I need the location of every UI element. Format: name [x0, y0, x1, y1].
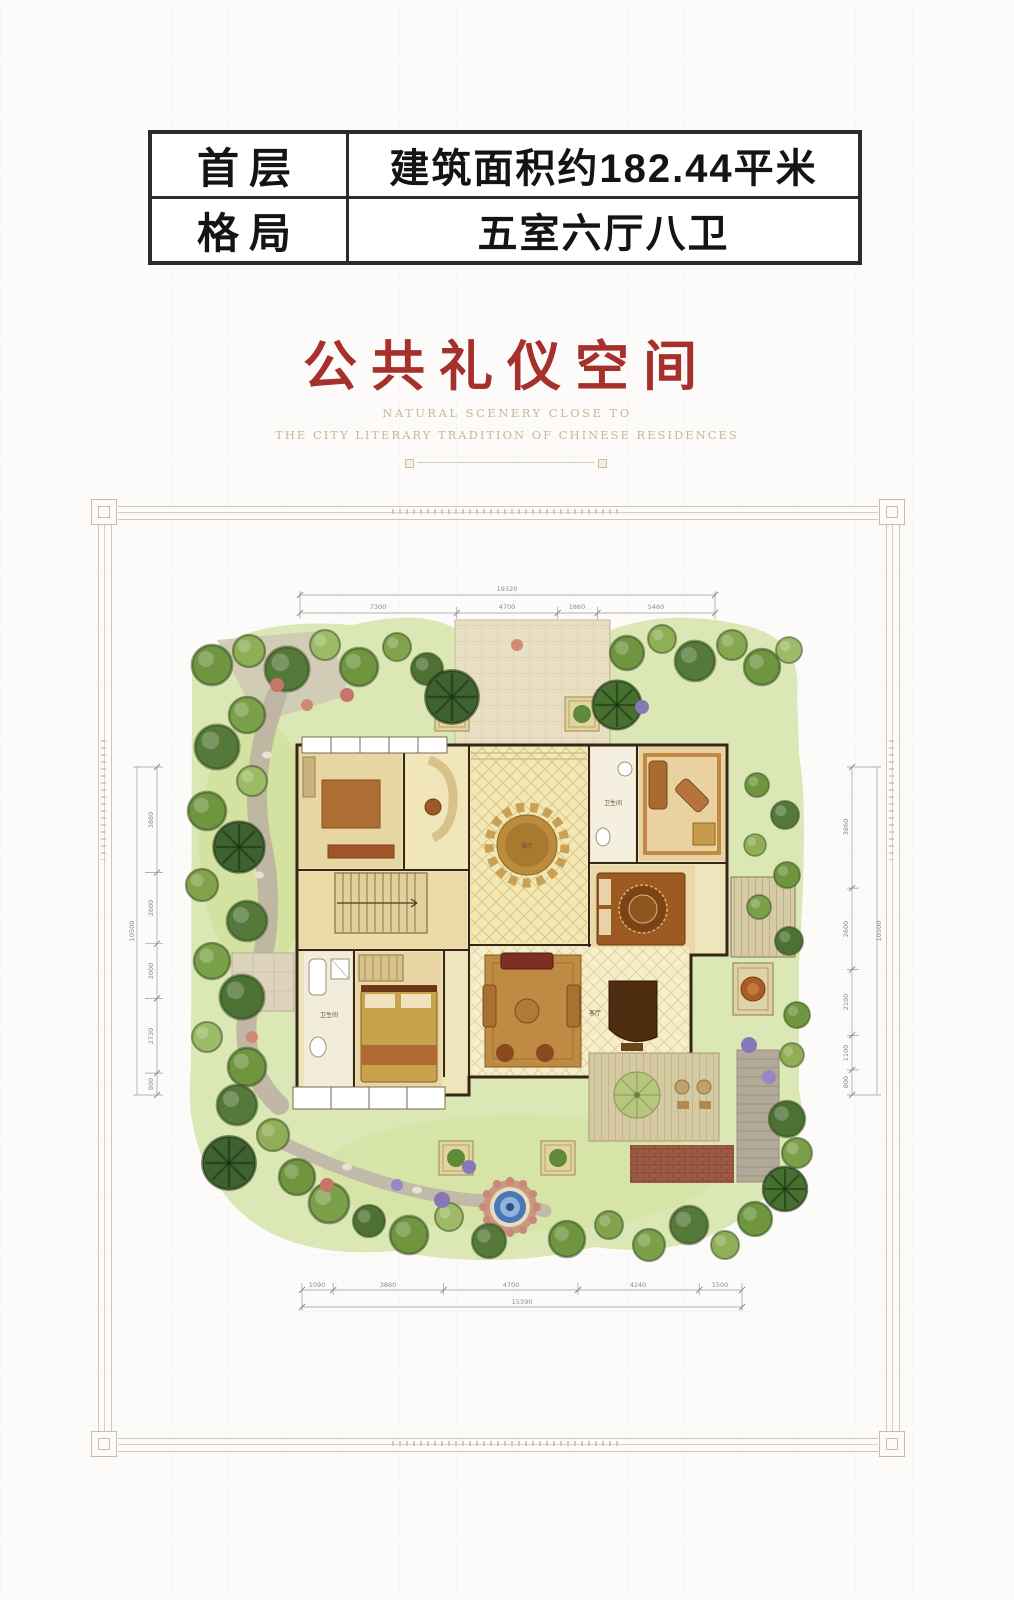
- dimension-bottom: 1090 3860 4700 4240 1500 15390: [299, 1281, 745, 1311]
- svg-text:3860: 3860: [147, 812, 155, 829]
- tagline-line2: THE CITY LITERARY TRADITION OF CHINESE R…: [0, 428, 1014, 442]
- svg-text:卫生间: 卫生间: [320, 1011, 338, 1019]
- svg-text:4700: 4700: [499, 603, 516, 611]
- frame-corner-icon: [879, 1431, 905, 1457]
- divider-square-icon: [405, 459, 414, 468]
- table-row: 首层 建筑面积约182.44平米: [152, 134, 858, 196]
- frame-corner-icon: [91, 1431, 117, 1457]
- window-band-bottom: [293, 1087, 445, 1109]
- svg-text:1100: 1100: [842, 1045, 850, 1062]
- area-value: 建筑面积约182.44平米: [349, 134, 858, 196]
- brick-terrace: [630, 1145, 734, 1183]
- dimension-left: 3860 2600 2000 2730 800 10500: [128, 764, 163, 1098]
- svg-text:2600: 2600: [147, 900, 155, 917]
- page-title: 公共礼仪空间: [0, 322, 1014, 401]
- svg-text:10500: 10500: [128, 921, 136, 942]
- patio-deck: [589, 1053, 719, 1141]
- svg-text:3860: 3860: [380, 1281, 397, 1289]
- svg-text:2100: 2100: [842, 994, 850, 1011]
- svg-text:2730: 2730: [147, 1028, 155, 1045]
- frame-ornament-text: [392, 509, 622, 514]
- svg-text:2000: 2000: [147, 963, 155, 980]
- svg-text:1500: 1500: [712, 1281, 729, 1289]
- svg-text:客厅: 客厅: [589, 1009, 601, 1017]
- dimension-top: 19320 7300 4700 1860 5460: [297, 585, 718, 619]
- info-table: 首层 建筑面积约182.44平米 格局 五室六厅八卫: [148, 130, 862, 265]
- svg-text:1090: 1090: [309, 1281, 326, 1289]
- floor-label: 首层: [152, 134, 349, 196]
- divider-square-icon: [598, 459, 607, 468]
- svg-text:15390: 15390: [512, 1298, 533, 1306]
- frame-corner-icon: [879, 499, 905, 525]
- svg-text:10500: 10500: [875, 921, 883, 942]
- parasol-icon: [614, 1072, 660, 1118]
- frame-ornament-text: [392, 1441, 622, 1446]
- layout-label: 格局: [152, 199, 349, 261]
- svg-text:4240: 4240: [630, 1281, 647, 1289]
- svg-text:800: 800: [842, 1076, 850, 1088]
- frame-corner-icon: [91, 499, 117, 525]
- svg-text:4700: 4700: [503, 1281, 520, 1289]
- flyer-page: 首层 建筑面积约182.44平米 格局 五室六厅八卫 公共礼仪空间 NATURA…: [0, 0, 1014, 1600]
- entry-foyer: [733, 963, 773, 1015]
- svg-text:卫生间: 卫生间: [604, 799, 622, 807]
- svg-text:5460: 5460: [648, 603, 665, 611]
- layout-value: 五室六厅八卫: [349, 199, 858, 261]
- svg-text:19320: 19320: [497, 585, 518, 593]
- window-band-top: [302, 737, 447, 753]
- svg-text:餐厅: 餐厅: [521, 842, 533, 850]
- svg-text:7300: 7300: [370, 603, 387, 611]
- svg-text:2600: 2600: [842, 921, 850, 938]
- table-row: 格局 五室六厅八卫: [152, 196, 858, 261]
- dimension-right: 3860 2600 2100 1100 800 10500: [842, 764, 883, 1098]
- tagline-divider: [405, 459, 607, 466]
- floor-plan-illustration: 19320 7300 4700 1860 5460 1090 3860 4700…: [97, 545, 897, 1325]
- svg-text:1860: 1860: [569, 603, 586, 611]
- tagline-line1: NATURAL SCENERY CLOSE TO: [0, 406, 1014, 420]
- svg-text:3860: 3860: [842, 819, 850, 836]
- svg-text:800: 800: [147, 1078, 155, 1090]
